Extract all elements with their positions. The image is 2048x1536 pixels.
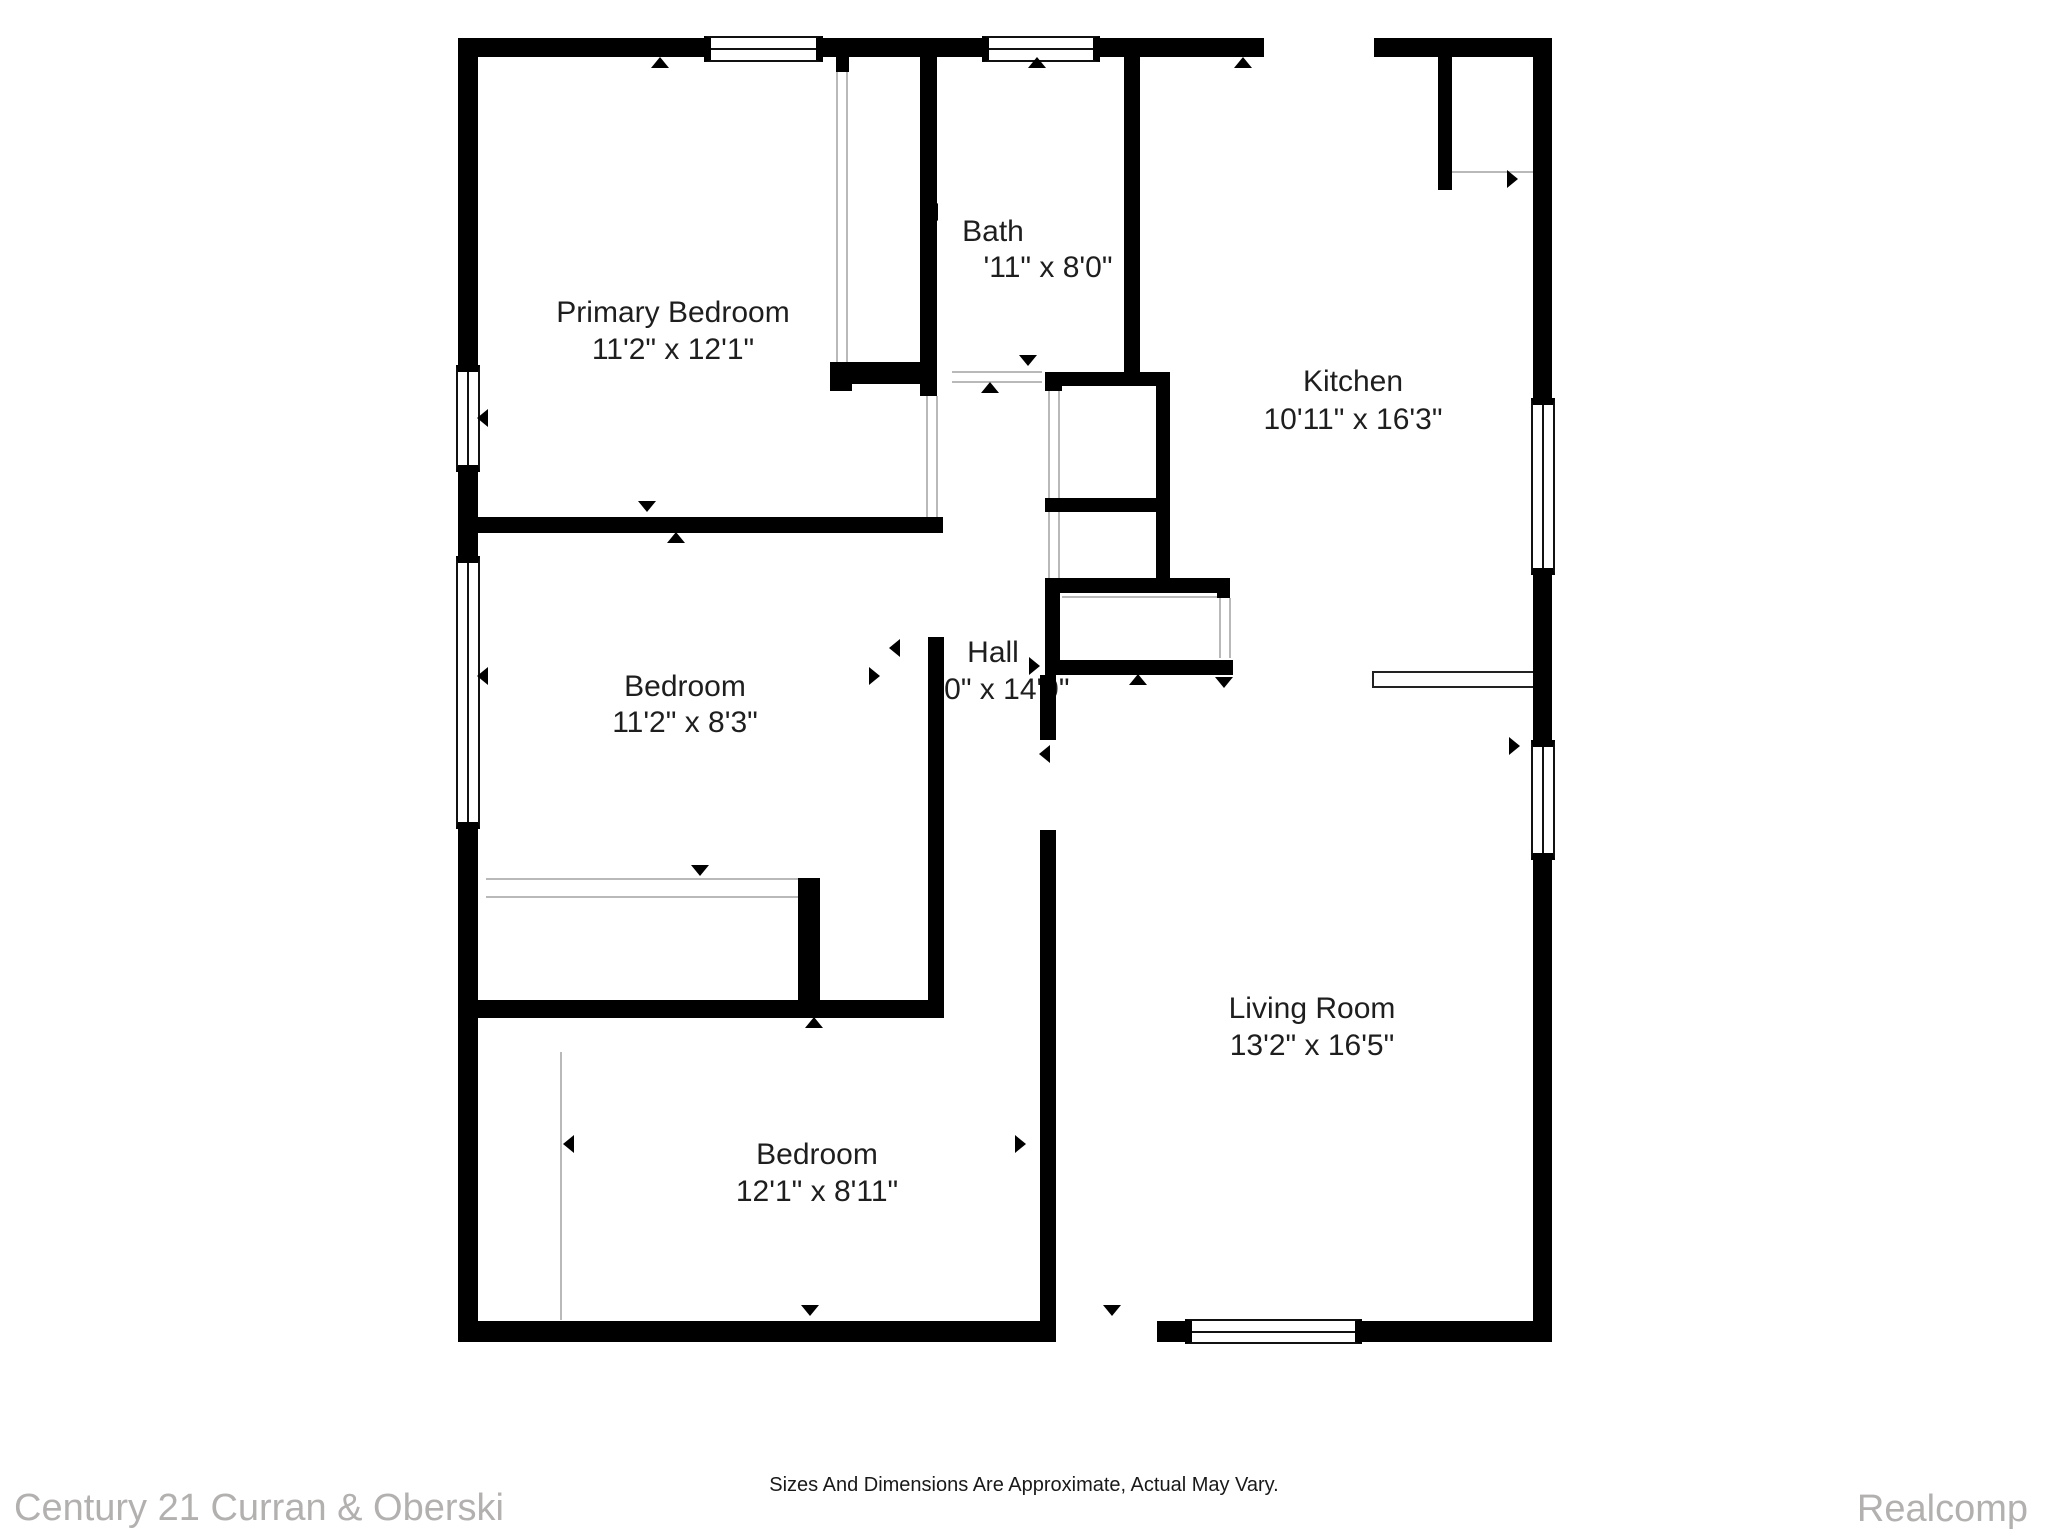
- partition-line: [1048, 512, 1050, 578]
- room-dims-primary-bedroom: 11'2" x 12'1": [592, 335, 754, 365]
- door-marker-icon: [869, 667, 880, 685]
- window-pane-line: [1542, 747, 1544, 853]
- door-marker-icon: [691, 865, 709, 876]
- window-icon: [1531, 398, 1555, 575]
- wall-segment: [458, 38, 478, 365]
- window-pane-line: [989, 48, 1093, 50]
- partition-line: [936, 396, 938, 517]
- wall-segment: [458, 517, 943, 533]
- wall-segment: [1040, 830, 1056, 1342]
- room-label-living-room: Living Room: [1229, 994, 1396, 1024]
- room-label-primary-bedroom: Primary Bedroom: [556, 298, 789, 328]
- partition-line: [1062, 596, 1217, 598]
- room-label-bath: Bath: [962, 217, 1024, 247]
- wall-segment: [458, 1000, 943, 1018]
- room-dims-bedroom-lower: 12'1" x 8'11": [736, 1177, 898, 1207]
- partition-line: [1048, 391, 1050, 498]
- wall-segment: [458, 38, 704, 57]
- wall-segment: [1533, 575, 1552, 740]
- partition-line: [926, 396, 928, 517]
- wall-segment: [1124, 57, 1140, 372]
- wall-segment: [1045, 578, 1230, 593]
- partition-line: [836, 72, 838, 362]
- window-pane-line: [467, 563, 469, 822]
- door-marker-icon: [667, 532, 685, 543]
- disclaimer-text: Sizes And Dimensions Are Approximate, Ac…: [0, 1474, 2048, 1497]
- window-icon: [704, 36, 823, 62]
- wall-segment: [1040, 675, 1056, 740]
- partition-line: [486, 896, 798, 898]
- wall-segment: [1045, 372, 1062, 391]
- window-icon: [1531, 740, 1555, 860]
- door-marker-icon: [1015, 1135, 1026, 1153]
- wall-segment: [1100, 38, 1264, 57]
- door-marker-icon: [1039, 745, 1050, 763]
- wall-segment: [1045, 372, 1170, 386]
- wall-segment: [823, 38, 982, 57]
- door-marker-icon: [1215, 677, 1233, 688]
- partition-line: [1452, 171, 1533, 173]
- door-marker-icon: [651, 57, 669, 68]
- room-label-bedroom-lower: Bedroom: [756, 1140, 878, 1170]
- wall-segment: [798, 878, 820, 1018]
- wall-segment: [1374, 38, 1552, 57]
- window-pane-line: [467, 372, 469, 465]
- wall-segment: [1438, 57, 1452, 190]
- partition-line: [1219, 598, 1221, 658]
- partition-line: [1229, 598, 1231, 658]
- room-label-kitchen: Kitchen: [1303, 367, 1403, 397]
- room-dims-bath: '11" x 8'0": [984, 253, 1113, 283]
- wall-segment: [1362, 1321, 1552, 1342]
- window-pane-line: [1542, 405, 1544, 568]
- door-marker-icon: [1103, 1305, 1121, 1316]
- door-marker-icon: [801, 1305, 819, 1316]
- door-marker-icon: [477, 667, 488, 685]
- wall-segment: [1533, 38, 1552, 398]
- door-marker-icon: [1028, 57, 1046, 68]
- wall-segment: [1156, 512, 1170, 583]
- partition-line: [1058, 512, 1060, 578]
- window-icon: [1185, 1319, 1362, 1344]
- wall-segment: [836, 57, 849, 72]
- window-pane-line: [1192, 1331, 1355, 1333]
- wall-segment: [458, 1321, 1052, 1342]
- door-marker-icon: [1234, 57, 1252, 68]
- wall-segment: [1157, 1321, 1185, 1342]
- door-marker-icon: [981, 382, 999, 393]
- door-marker-icon: [1507, 170, 1518, 188]
- wall-segment: [1217, 578, 1230, 598]
- door-marker-icon: [1129, 674, 1147, 685]
- room-dims-living-room: 13'2" x 16'5": [1230, 1031, 1395, 1061]
- wall-segment: [1045, 498, 1170, 512]
- wall-segment: [830, 362, 852, 391]
- partition-line: [846, 72, 848, 362]
- wall-segment: [458, 829, 478, 1342]
- realcomp-logo: Realcomp: [1857, 1488, 2028, 1531]
- door-marker-icon: [1019, 355, 1037, 366]
- door-marker-icon: [889, 639, 900, 657]
- window-pane-line: [711, 48, 816, 50]
- wall-segment: [920, 57, 937, 396]
- door-marker-icon: [1029, 657, 1040, 675]
- partition-line: [560, 1052, 562, 1320]
- wall-segment: [1045, 660, 1233, 675]
- wall-segment: [928, 637, 944, 1018]
- door-marker-icon: [477, 409, 488, 427]
- door-marker-icon: [1509, 737, 1520, 755]
- door-marker-icon: [563, 1135, 574, 1153]
- wall-segment: [1533, 860, 1552, 1342]
- door-marker-icon: [927, 203, 938, 221]
- room-label-hall: Hall: [967, 638, 1019, 668]
- room-dims-bedroom-middle: 11'2" x 8'3": [612, 708, 758, 738]
- room-label-bedroom-middle: Bedroom: [624, 672, 746, 702]
- window-icon: [456, 556, 480, 829]
- wall-segment: [1156, 372, 1170, 512]
- door-marker-icon: [638, 501, 656, 512]
- door-marker-icon: [805, 1017, 823, 1028]
- partition-line: [952, 371, 1042, 373]
- floor-plan: Primary Bedroom11'2" x 12'1"Bath'11" x 8…: [0, 0, 2048, 1536]
- kitchen-counter: [1372, 671, 1537, 688]
- partition-line: [1058, 391, 1060, 498]
- room-dims-kitchen: 10'11" x 16'3": [1264, 405, 1443, 435]
- partition-line: [486, 878, 798, 880]
- wall-segment: [458, 472, 478, 556]
